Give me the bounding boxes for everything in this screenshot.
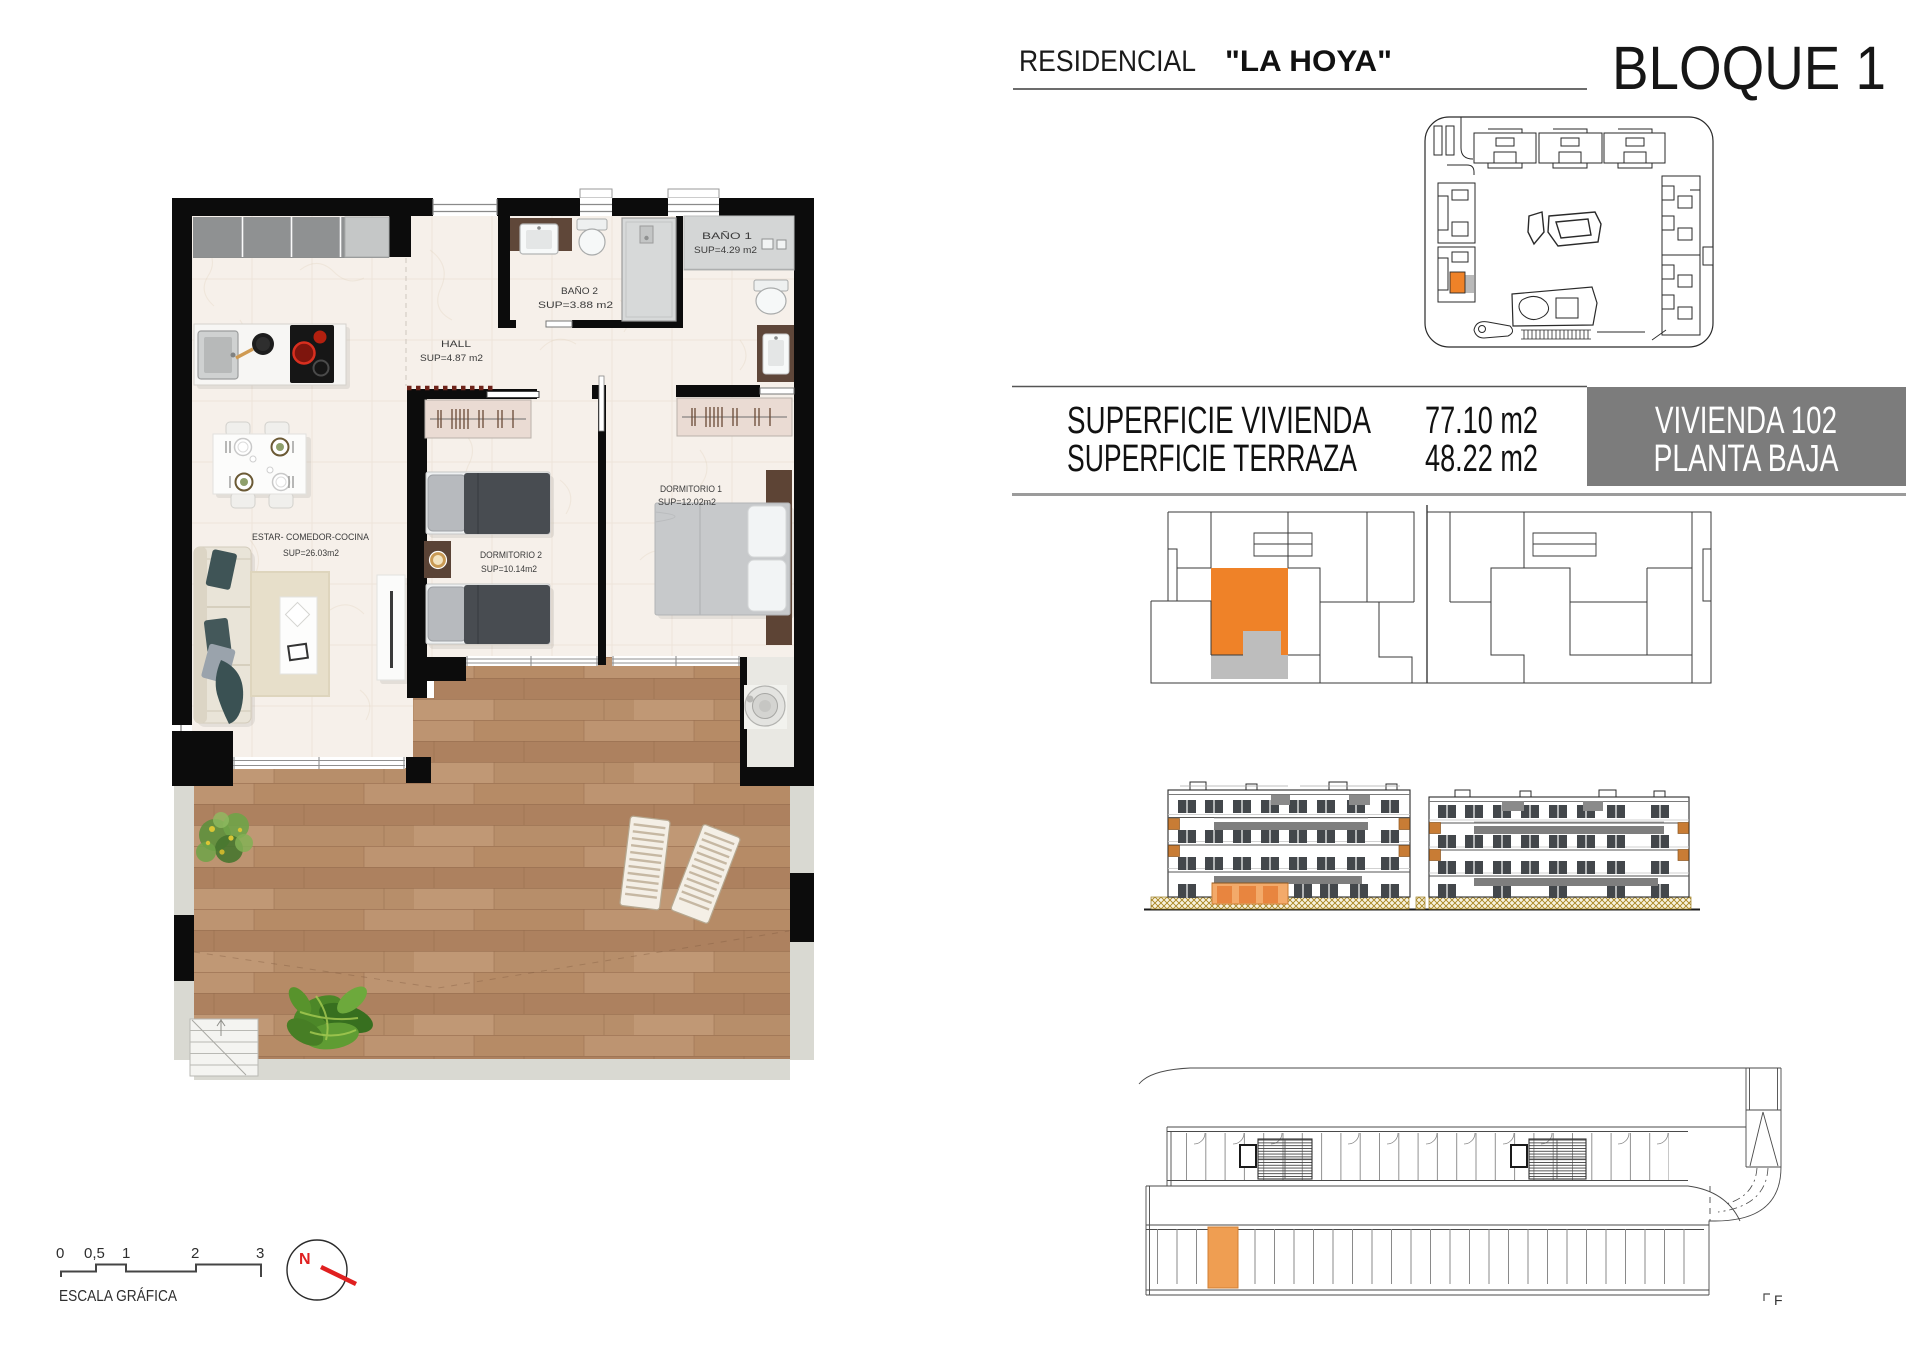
svg-text:DORMITORIO 2: DORMITORIO 2 — [480, 550, 542, 561]
svg-text:SUP=3.88 m2: SUP=3.88 m2 — [538, 300, 613, 311]
svg-text:DORMITORIO 1: DORMITORIO 1 — [660, 484, 722, 495]
svg-text:PLANTA BAJA: PLANTA BAJA — [1654, 438, 1839, 480]
svg-text:SUP=10.14m2: SUP=10.14m2 — [481, 564, 537, 575]
svg-text:BAÑO 2: BAÑO 2 — [561, 286, 598, 297]
svg-text:0,5: 0,5 — [84, 1245, 105, 1262]
svg-text:48.22 m2: 48.22 m2 — [1425, 438, 1538, 480]
svg-text:SUPERFICIE VIVIENDA: SUPERFICIE VIVIENDA — [1067, 400, 1371, 442]
svg-text:ESCALA GRÁFICA: ESCALA GRÁFICA — [59, 1286, 177, 1305]
svg-text:RESIDENCIAL: RESIDENCIAL — [1019, 45, 1196, 78]
svg-text:0: 0 — [56, 1245, 64, 1262]
svg-text:ESTAR- COMEDOR-COCINA: ESTAR- COMEDOR-COCINA — [252, 532, 370, 543]
svg-text:SUP=4.29 m2: SUP=4.29 m2 — [694, 245, 757, 256]
svg-text:1: 1 — [122, 1245, 130, 1262]
svg-text:3: 3 — [256, 1245, 264, 1262]
svg-text:HALL: HALL — [441, 339, 471, 350]
svg-text:SUP=4.87 m2: SUP=4.87 m2 — [420, 353, 483, 364]
svg-text:SUP=26.03m2: SUP=26.03m2 — [283, 548, 339, 559]
svg-text:77.10 m2: 77.10 m2 — [1425, 400, 1538, 442]
svg-text:F: F — [1774, 1292, 1783, 1308]
svg-text:"LA HOYA": "LA HOYA" — [1225, 45, 1392, 78]
svg-text:VIVIENDA 102: VIVIENDA 102 — [1655, 400, 1837, 442]
svg-text:SUPERFICIE TERRAZA: SUPERFICIE TERRAZA — [1067, 438, 1357, 480]
svg-text:N: N — [299, 1251, 311, 1268]
svg-text:BLOQUE 1: BLOQUE 1 — [1612, 34, 1886, 102]
svg-text:BAÑO 1: BAÑO 1 — [702, 231, 752, 242]
svg-text:SUP=12.02m2: SUP=12.02m2 — [658, 497, 716, 508]
svg-text:2: 2 — [191, 1245, 199, 1262]
